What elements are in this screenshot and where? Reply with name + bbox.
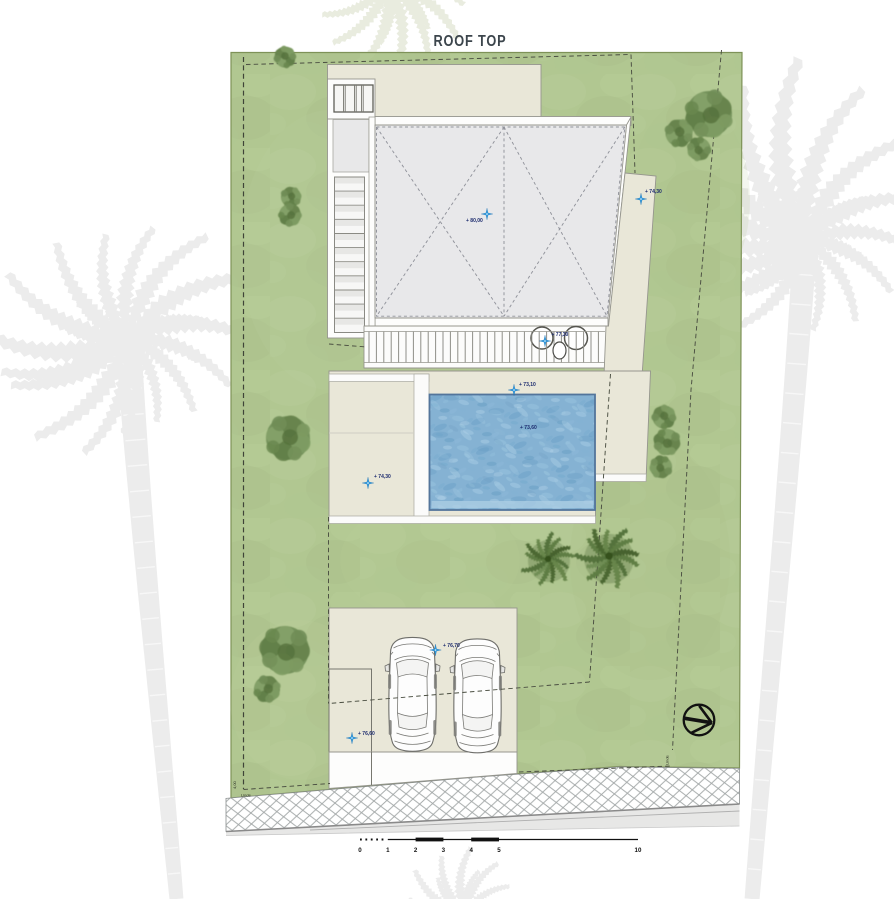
svg-text:4: 4 (469, 847, 473, 854)
svg-text:10: 10 (635, 847, 642, 854)
svg-text:Linde: Linde (241, 793, 252, 798)
svg-text:Linde: Linde (665, 754, 670, 765)
svg-text:+ 73,60: + 73,60 (520, 425, 537, 431)
svg-text:1: 1 (386, 847, 390, 854)
svg-text:5: 5 (497, 847, 501, 854)
svg-text:+ 77,30: + 77,30 (552, 332, 569, 338)
svg-text:0: 0 (358, 847, 362, 854)
svg-text:3: 3 (442, 847, 446, 854)
svg-text:+ 74,30: + 74,30 (374, 474, 391, 480)
svg-text:2: 2 (414, 847, 418, 854)
svg-text:+ 74,30: + 74,30 (645, 189, 662, 195)
svg-text:+ 76,70: + 76,70 (443, 643, 460, 649)
svg-text:4,00: 4,00 (232, 780, 237, 789)
svg-text:+ 76,60: + 76,60 (358, 731, 375, 737)
svg-text:+ 80,00: + 80,00 (466, 218, 483, 224)
svg-text:ROOF TOP: ROOF TOP (434, 33, 507, 50)
svg-text:+ 73,10: + 73,10 (519, 382, 536, 388)
